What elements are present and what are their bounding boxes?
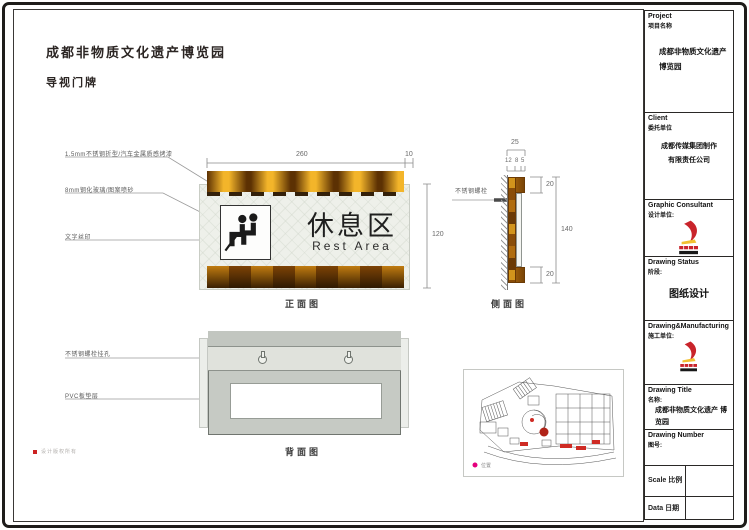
client-label-cn: 委托单位 [645, 123, 733, 132]
titleblock-status: Drawing Status 阶段: 图纸设计 [644, 256, 734, 321]
callout-print-label: 文字丝印 [65, 232, 91, 241]
dim-side-a: 12 [505, 158, 512, 164]
consultant-label-en: Graphic Consultant [645, 200, 733, 210]
status-label-en: Drawing Status [645, 257, 733, 267]
titleblock-drawing-number: Drawing Number 图号: [644, 429, 734, 466]
rest-area-icon [220, 205, 271, 260]
dim-front-edge: 10 [405, 151, 413, 158]
scale-label-cn: 比例 [668, 477, 682, 484]
client-value-line1: 成都传媒集团制作 [645, 132, 733, 155]
titleblock-date: Data 日期 [644, 496, 734, 520]
callout-bolt-label: 不锈钢螺栓 [455, 186, 488, 195]
dim-front-width: 260 [296, 151, 308, 158]
front-view-caption: 正面图 [278, 297, 328, 310]
back-pvc-layer [230, 383, 382, 419]
titleblock-drawing-title: Drawing Title 名称: 成都非物质文化遗产 博览园 [644, 384, 734, 430]
project-label-cn: 项目名称 [645, 21, 733, 30]
date-cell-divider [685, 497, 686, 519]
wall-hatch [501, 175, 508, 290]
sign-text-en: Rest Area [294, 239, 410, 253]
dim-side-top: 20 [546, 181, 554, 188]
site-map [463, 369, 624, 477]
titleblock-client: Client 委托单位 成都传媒集团制作 有限责任公司 [644, 112, 734, 200]
sign-top-slats [207, 171, 404, 192]
manufacturing-label-cn: 施工单位: [645, 331, 733, 340]
drawing-sheet: 成都非物质文化遗产博览园 导视门牌 1.5mm不锈钢折型/汽车金属质感烤漆 8m… [0, 0, 749, 530]
dim-side-bottom: 20 [546, 271, 554, 278]
drawing-title-value: 成都非物质文化遗产 博览园 [645, 404, 733, 429]
consultant-logo-icon [645, 219, 733, 255]
side-view-caption: 侧面图 [484, 297, 534, 310]
scale-label-en: Scale [648, 477, 666, 484]
status-value: 图纸设计 [645, 276, 733, 305]
drawing-title-label-cn: 名称: [645, 395, 733, 404]
footnote-text: 设计版权所有 [41, 448, 77, 455]
keyhole-left-icon [258, 355, 267, 364]
client-value-line2: 有限责任公司 [645, 154, 733, 169]
dim-side-c: 5 [521, 158, 524, 164]
sign-bottom-slats [207, 266, 404, 288]
map-legend-label: 位置 [481, 462, 491, 469]
side-profile-web [508, 177, 516, 283]
back-top-band [208, 331, 401, 347]
callout-pvc-label: PVC板垫层 [65, 391, 98, 400]
manufacturing-label-en: Drawing&Manufacturing [645, 321, 733, 331]
sign-text-cn: 休息区 [294, 204, 410, 243]
callout-glass-label: 8mm钢化玻璃/图案喷砂 [65, 185, 134, 194]
side-glass-strip [516, 193, 522, 267]
scale-cell-divider [685, 466, 686, 496]
back-left-tab [199, 338, 208, 428]
titleblock-manufacturing: Drawing&Manufacturing 施工单位: [644, 320, 734, 385]
titleblock-project: Project 项目名称 成都非物质文化遗产 博览园 [644, 10, 734, 113]
status-label-cn: 阶段: [645, 267, 733, 276]
keyhole-right-icon [344, 355, 353, 364]
dim-side-total: 25 [511, 139, 519, 146]
project-value: 成都非物质文化遗产 博览园 [645, 30, 733, 76]
sign-top-slat-shadow [207, 192, 404, 196]
dim-front-height: 120 [432, 231, 444, 238]
manufacturing-logo-icon [645, 340, 733, 372]
date-label-cn: 日期 [665, 505, 679, 512]
callout-hole-label: 不锈钢螺栓挂孔 [65, 349, 111, 358]
drawing-title-label-en: Drawing Title [645, 385, 733, 395]
project-label-en: Project [645, 11, 733, 21]
titleblock-consultant: Graphic Consultant 设计单位: [644, 199, 734, 257]
dim-side-b: 8 [515, 158, 518, 164]
footnote-marker [33, 450, 37, 454]
back-view-caption: 背面图 [278, 445, 328, 458]
callout-steel-label: 1.5mm不锈钢折型/汽车金属质感烤漆 [65, 149, 173, 158]
dim-side-mid: 140 [561, 226, 573, 233]
drawing-number-label-en: Drawing Number [645, 430, 733, 440]
titleblock-scale: Scale 比例 [644, 465, 734, 497]
consultant-label-cn: 设计单位: [645, 210, 733, 219]
map-legend-dot [473, 463, 478, 468]
drawing-number-label-cn: 图号: [645, 440, 733, 449]
date-label-en: Data [648, 505, 663, 512]
back-right-tab [400, 338, 409, 428]
client-label-en: Client [645, 113, 733, 123]
back-light-band [208, 347, 401, 371]
